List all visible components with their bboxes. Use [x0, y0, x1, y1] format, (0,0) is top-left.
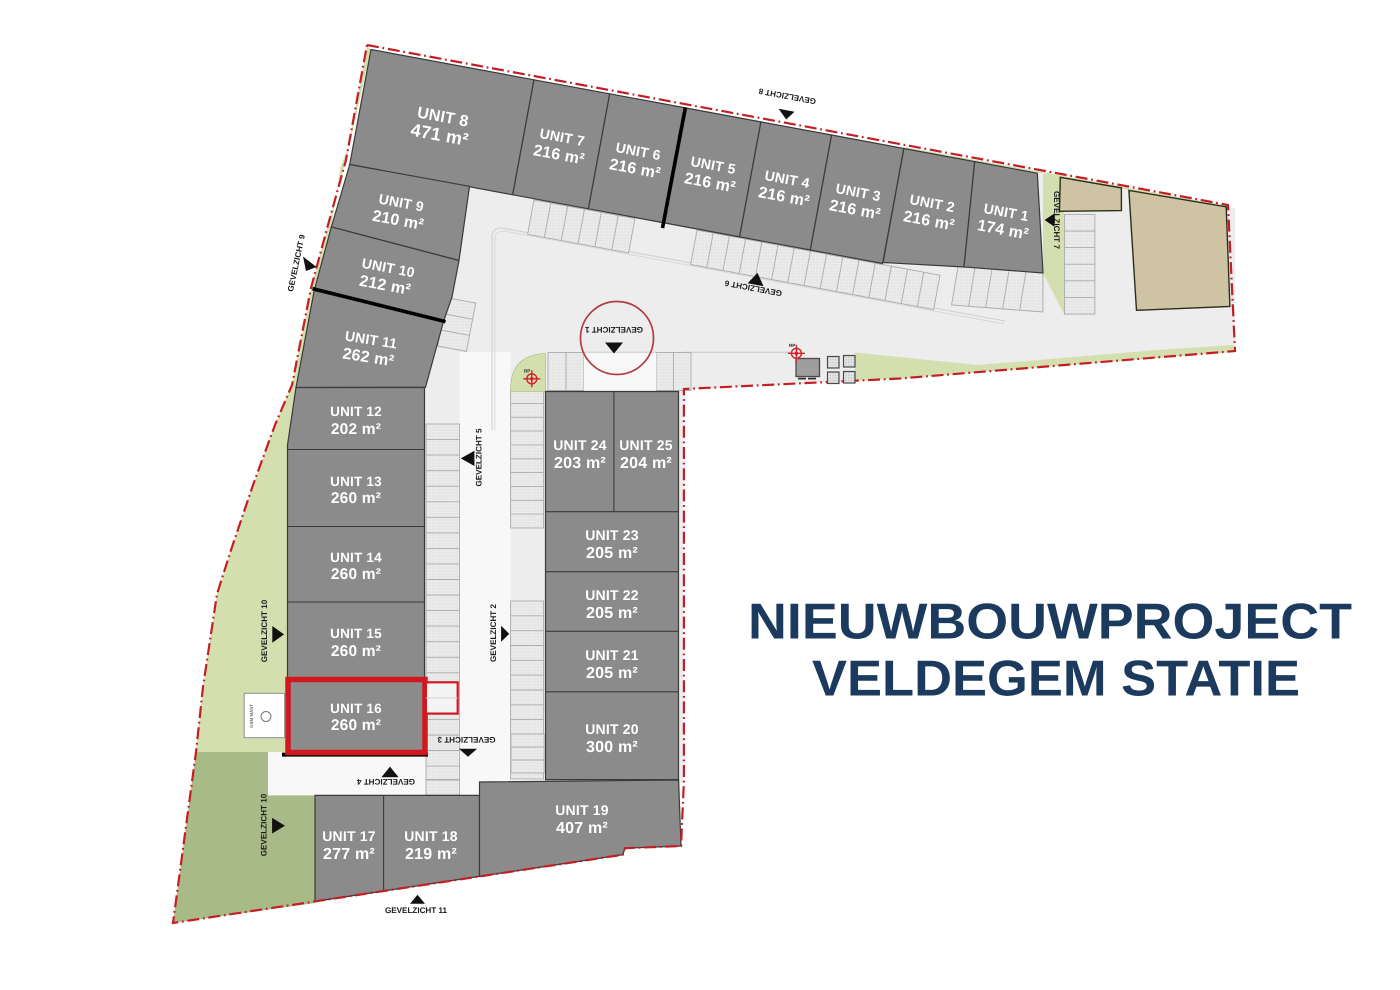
svg-text:GSM MAST: GSM MAST: [249, 704, 254, 728]
svg-text:GEVELZICHT 3: GEVELZICHT 3: [437, 735, 496, 744]
svg-text:GEVELZICHT 1: GEVELZICHT 1: [584, 325, 643, 334]
svg-text:202 m²: 202 m²: [331, 421, 381, 438]
svg-text:UNIT 23: UNIT 23: [585, 527, 639, 543]
svg-text:UNIT 22: UNIT 22: [585, 587, 639, 603]
svg-text:GEVELZICHT 5: GEVELZICHT 5: [475, 428, 484, 487]
svg-text:UNIT 14: UNIT 14: [330, 550, 382, 565]
svg-text:GEVELZICHT 11: GEVELZICHT 11: [385, 906, 448, 915]
svg-text:205 m²: 205 m²: [586, 665, 638, 682]
svg-text:UNIT 17: UNIT 17: [322, 828, 376, 844]
svg-text:260 m²: 260 m²: [331, 566, 381, 583]
svg-text:UNIT 15: UNIT 15: [330, 626, 382, 641]
svg-text:UNIT 12: UNIT 12: [330, 404, 382, 419]
svg-text:RP: RP: [789, 343, 795, 348]
svg-text:GEVELZICHT 4: GEVELZICHT 4: [356, 777, 415, 786]
svg-text:GEVELZICHT 2: GEVELZICHT 2: [489, 603, 498, 662]
svg-text:UNIT 13: UNIT 13: [330, 474, 382, 489]
svg-text:RP: RP: [524, 369, 530, 374]
svg-text:UNIT 16: UNIT 16: [330, 701, 382, 716]
svg-text:NIEUWBOUWPROJECT: NIEUWBOUWPROJECT: [748, 593, 1352, 650]
svg-text:205 m²: 205 m²: [586, 545, 638, 562]
svg-text:260 m²: 260 m²: [331, 490, 381, 507]
svg-text:GEVELZICHT 10: GEVELZICHT 10: [260, 793, 269, 856]
svg-text:UNIT 19: UNIT 19: [555, 802, 609, 818]
svg-text:UNIT 21: UNIT 21: [585, 647, 639, 663]
svg-text:219 m²: 219 m²: [405, 846, 457, 863]
svg-text:UNIT 25: UNIT 25: [619, 437, 673, 453]
svg-text:VELDEGEM STATIE: VELDEGEM STATIE: [812, 650, 1300, 707]
svg-text:205 m²: 205 m²: [586, 605, 638, 622]
svg-text:204 m²: 204 m²: [620, 455, 672, 472]
svg-text:203 m²: 203 m²: [554, 455, 606, 472]
svg-text:277 m²: 277 m²: [323, 846, 375, 863]
svg-text:407 m²: 407 m²: [556, 820, 608, 837]
svg-text:260 m²: 260 m²: [331, 717, 381, 734]
svg-text:300 m²: 300 m²: [586, 739, 638, 756]
svg-text:GEVELZICHT 10: GEVELZICHT 10: [260, 599, 269, 662]
svg-text:UNIT 24: UNIT 24: [553, 437, 607, 453]
svg-text:UNIT 20: UNIT 20: [585, 721, 639, 737]
svg-text:260 m²: 260 m²: [331, 643, 381, 660]
svg-text:UNIT 18: UNIT 18: [404, 828, 458, 844]
